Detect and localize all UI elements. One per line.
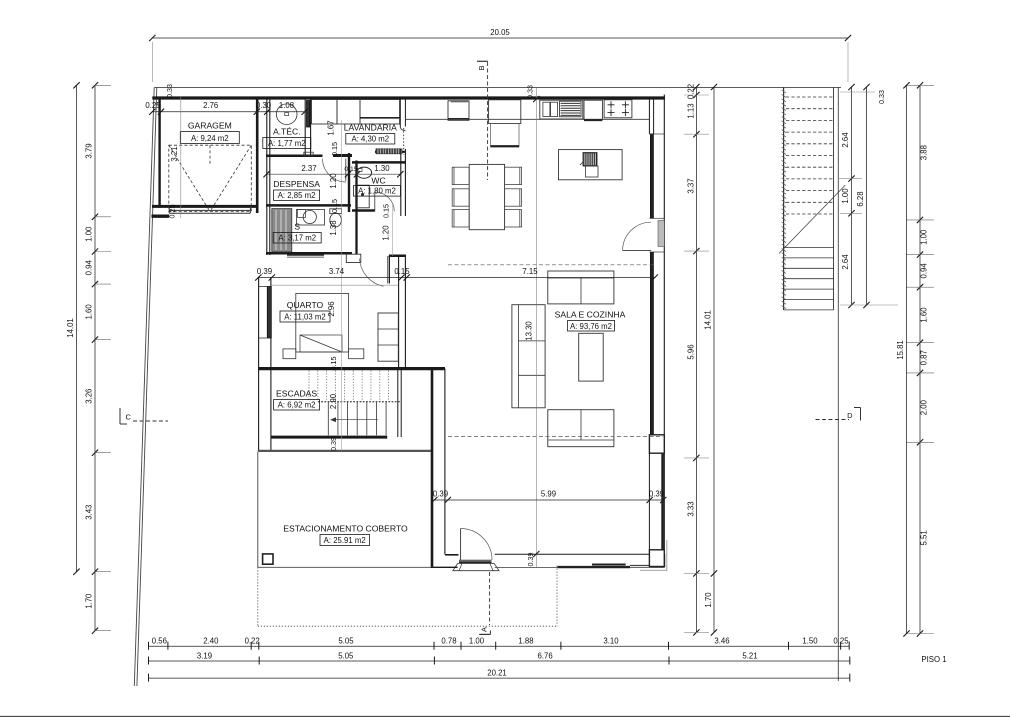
svg-text:2.64: 2.64 xyxy=(841,254,850,270)
svg-text:A: 6,92 m2: A: 6,92 m2 xyxy=(278,400,316,409)
svg-text:0.22: 0.22 xyxy=(687,84,696,99)
svg-text:0.22: 0.22 xyxy=(245,637,260,646)
svg-text:0.25: 0.25 xyxy=(145,101,161,110)
svg-text:3.46: 3.46 xyxy=(714,637,729,646)
svg-text:0.33: 0.33 xyxy=(877,90,886,104)
svg-text:5.05: 5.05 xyxy=(338,652,354,661)
svg-text:1.67: 1.67 xyxy=(327,120,336,135)
svg-text:0.87: 0.87 xyxy=(920,350,929,365)
svg-text:5.99: 5.99 xyxy=(541,489,556,498)
svg-text:3.33: 3.33 xyxy=(687,501,696,516)
svg-text:3.79: 3.79 xyxy=(85,143,94,158)
svg-text:0.39: 0.39 xyxy=(433,489,448,498)
svg-text:3.19: 3.19 xyxy=(197,652,212,661)
svg-text:WC: WC xyxy=(371,175,385,185)
svg-text:2.40: 2.40 xyxy=(203,637,219,646)
svg-text:13.30: 13.30 xyxy=(525,321,534,341)
svg-text:1.88: 1.88 xyxy=(518,637,533,646)
svg-text:3.37: 3.37 xyxy=(687,178,696,193)
svg-text:0.15: 0.15 xyxy=(330,142,339,156)
svg-text:0.78: 0.78 xyxy=(441,637,456,646)
svg-text:20.05: 20.05 xyxy=(490,28,510,37)
svg-text:5.21: 5.21 xyxy=(742,652,757,661)
svg-text:LAVANDARIA: LAVANDARIA xyxy=(344,123,397,133)
svg-text:0.39: 0.39 xyxy=(649,489,664,498)
svg-text:0.39: 0.39 xyxy=(526,553,535,567)
svg-text:D: D xyxy=(847,411,853,420)
svg-text:1.38: 1.38 xyxy=(329,220,338,235)
svg-text:A: 11,03 m2: A: 11,03 m2 xyxy=(284,312,325,321)
svg-text:3.88: 3.88 xyxy=(920,145,929,160)
svg-text:3.21: 3.21 xyxy=(170,146,179,161)
svg-text:6.28: 6.28 xyxy=(856,191,865,206)
svg-text:1.60: 1.60 xyxy=(85,304,94,320)
svg-text:2.64: 2.64 xyxy=(841,132,850,148)
svg-text:A: 4,30 m2: A: 4,30 m2 xyxy=(351,134,389,143)
svg-text:A: A xyxy=(480,627,489,632)
svg-text:A: 93,76 m2: A: 93,76 m2 xyxy=(570,322,612,331)
svg-text:0.94: 0.94 xyxy=(920,263,929,279)
svg-text:ESTACIONAMENTO COBERTO: ESTACIONAMENTO COBERTO xyxy=(283,524,408,534)
svg-text:2.90: 2.90 xyxy=(329,393,338,409)
svg-text:15.81: 15.81 xyxy=(896,340,905,360)
svg-text:0.30: 0.30 xyxy=(256,101,272,110)
svg-text:1.70: 1.70 xyxy=(85,593,94,609)
svg-text:0.25: 0.25 xyxy=(833,637,849,646)
svg-text:A: 2,85 m2: A: 2,85 m2 xyxy=(278,191,316,200)
svg-text:5.05: 5.05 xyxy=(338,637,354,646)
svg-text:A.TÉC.: A.TÉC. xyxy=(273,127,301,137)
svg-text:6.76: 6.76 xyxy=(538,652,553,661)
svg-text:0.39: 0.39 xyxy=(329,437,338,451)
svg-text:2.37: 2.37 xyxy=(301,164,316,173)
svg-text:7.15: 7.15 xyxy=(522,267,538,276)
svg-text:S: S xyxy=(294,222,300,232)
svg-text:PISO 1: PISO 1 xyxy=(921,655,946,664)
svg-text:2.96: 2.96 xyxy=(327,301,336,316)
svg-text:0.94: 0.94 xyxy=(85,260,94,276)
svg-text:1.60: 1.60 xyxy=(920,307,929,323)
svg-text:0.15: 0.15 xyxy=(330,199,339,213)
svg-text:1.20: 1.20 xyxy=(382,225,391,241)
svg-text:1.00: 1.00 xyxy=(841,188,850,204)
svg-text:3.74: 3.74 xyxy=(329,267,345,276)
svg-text:DESPENSA: DESPENSA xyxy=(273,179,320,189)
svg-text:14.01: 14.01 xyxy=(704,310,713,330)
svg-text:5.96: 5.96 xyxy=(687,344,696,359)
svg-text:1.08: 1.08 xyxy=(279,101,294,110)
svg-text:1.20: 1.20 xyxy=(329,173,338,189)
svg-text:0.56: 0.56 xyxy=(152,637,167,646)
svg-text:0,15: 0,15 xyxy=(344,166,357,173)
svg-text:3.26: 3.26 xyxy=(85,389,94,404)
svg-text:1.70: 1.70 xyxy=(704,592,713,608)
svg-text:A: 3,17 m2: A: 3,17 m2 xyxy=(278,233,316,242)
svg-text:GARAGEM: GARAGEM xyxy=(188,121,232,131)
svg-text:SALA E COZINHA: SALA E COZINHA xyxy=(555,310,626,320)
svg-text:A: 9,24 m2: A: 9,24 m2 xyxy=(191,134,229,143)
svg-text:2.00: 2.00 xyxy=(920,399,929,415)
svg-text:0.15: 0.15 xyxy=(329,357,338,371)
svg-text:C: C xyxy=(126,413,132,422)
svg-text:0.25: 0.25 xyxy=(167,205,176,219)
svg-text:1.00: 1.00 xyxy=(920,229,929,245)
svg-text:3.43: 3.43 xyxy=(85,505,94,520)
svg-text:ESCADAS: ESCADAS xyxy=(276,389,317,399)
svg-text:0.15: 0.15 xyxy=(382,204,391,218)
svg-text:2.76: 2.76 xyxy=(203,101,218,110)
svg-text:0.33: 0.33 xyxy=(165,84,174,98)
svg-text:0.15: 0.15 xyxy=(394,267,410,276)
svg-text:5.51: 5.51 xyxy=(920,530,929,545)
svg-text:1.00: 1.00 xyxy=(85,226,94,242)
svg-text:A: 25.91 m2: A: 25.91 m2 xyxy=(324,536,366,545)
svg-text:1.50: 1.50 xyxy=(802,637,818,646)
svg-text:QUARTO: QUARTO xyxy=(287,300,324,310)
svg-text:20.21: 20.21 xyxy=(487,668,507,677)
svg-text:1.00: 1.00 xyxy=(469,637,485,646)
svg-text:A: 1,80 m2: A: 1,80 m2 xyxy=(358,187,396,196)
svg-text:1.13: 1.13 xyxy=(687,103,696,118)
svg-text:B: B xyxy=(477,65,486,70)
svg-text:1.30: 1.30 xyxy=(374,164,390,173)
svg-text:3.10: 3.10 xyxy=(603,637,619,646)
svg-text:14.01: 14.01 xyxy=(66,318,75,338)
svg-text:0.33: 0.33 xyxy=(526,85,535,99)
svg-text:0.39: 0.39 xyxy=(257,267,272,276)
svg-text:A: 1,77 m2: A: 1,77 m2 xyxy=(268,139,306,148)
